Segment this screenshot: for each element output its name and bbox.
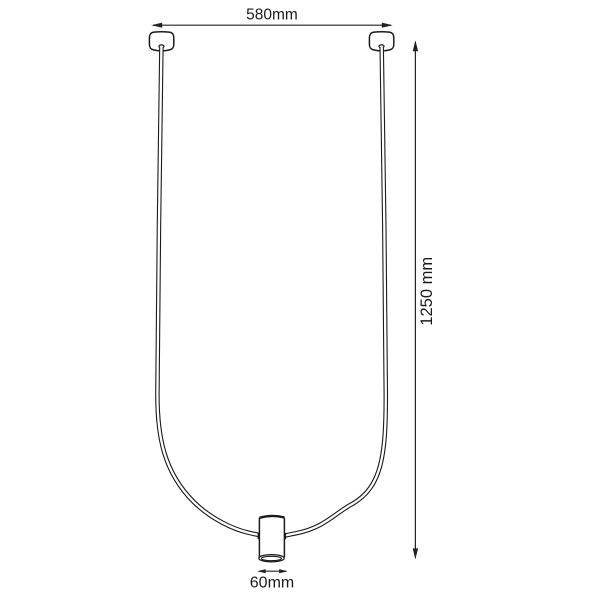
svg-text:580mm: 580mm — [246, 7, 298, 24]
svg-text:1250 mm: 1250 mm — [418, 257, 436, 326]
svg-text:60mm: 60mm — [250, 575, 294, 592]
